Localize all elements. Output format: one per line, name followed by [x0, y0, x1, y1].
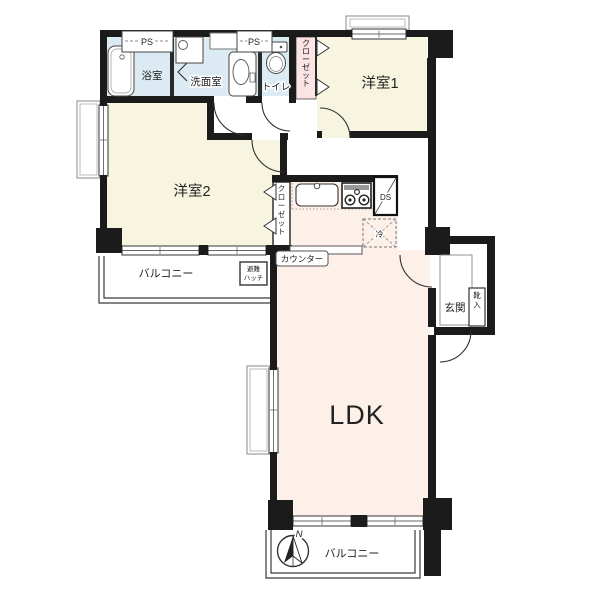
wall-corner-block [268, 500, 293, 530]
wall-segment [270, 255, 277, 370]
bedroom2-window-frame [77, 101, 100, 178]
counter-label: カウンター [281, 254, 324, 264]
ldk-left-window-frame [247, 366, 270, 454]
wall-segment [100, 30, 107, 106]
wall-segment [428, 335, 436, 498]
ldk-floor [277, 250, 430, 517]
bath-label: 浴室 [142, 69, 163, 82]
toilet-label: トイレ [262, 82, 291, 93]
toilet-door-arc [262, 103, 290, 131]
wall-segment [100, 96, 207, 103]
wall-segment [428, 138, 436, 230]
wall-segment [427, 58, 436, 138]
bedroom2-label: 洋室2 [173, 183, 210, 200]
wall-segment [246, 96, 262, 103]
wall-segment [270, 452, 277, 502]
ps-label-2: PS [248, 37, 260, 47]
stove-burner-center [348, 198, 351, 201]
wall-corner-block [425, 227, 450, 255]
toilet-tank-knob [280, 46, 283, 49]
ps-label-1: PS [141, 37, 153, 47]
wall-corner-block [96, 228, 122, 253]
wall-segment [406, 30, 430, 37]
wall-corner-block [423, 498, 452, 530]
wall-segment [434, 327, 495, 335]
stove-burner-center [362, 198, 365, 201]
escape-hatch-label-2: ハッチ [244, 274, 264, 282]
washroom-door-arc [214, 103, 246, 135]
closet-bedroom2-label: クローゼット [278, 184, 286, 236]
bedroom1-label: 洋室1 [361, 75, 398, 92]
front-door-arc [440, 331, 471, 362]
balcony-bottom-label: バルコニー [325, 547, 380, 560]
wall-segment [350, 131, 436, 138]
wall-segment [100, 175, 107, 228]
kitchen-faucet [314, 183, 320, 189]
washing-machine-icon [176, 37, 203, 63]
wall-hung-cabinet [210, 33, 237, 49]
wall-segment [207, 96, 214, 140]
bedroom1-window-frame [346, 16, 409, 30]
balcony-left: バルコニー 避難 ハッチ [99, 256, 277, 303]
wall-segment [487, 236, 495, 335]
washroom-label: 洗面室 [190, 75, 222, 88]
compass-n-label: N [296, 529, 303, 540]
entrance-area: 玄関 靴入 [440, 255, 485, 326]
wall-segment [199, 245, 208, 255]
wall-segment [424, 530, 441, 576]
compass-icon: N [278, 529, 309, 567]
shoe-cabinet-label: 靴入 [473, 290, 481, 310]
stove-burner-small [355, 190, 360, 195]
entrance-label: 玄関 [445, 301, 466, 314]
ds-label: DS [380, 193, 391, 202]
closet-bedroom1-label: クローゼット [302, 39, 310, 88]
wall-corner-block [428, 30, 453, 58]
wall-segment [280, 133, 287, 182]
bathtub-icon [108, 46, 134, 96]
balcony-bottom: バルコニー N [266, 529, 420, 578]
fridge-label: 冷 [376, 229, 384, 239]
wall-segment [428, 288, 436, 327]
entrance-step [440, 255, 472, 325]
ldk-label: LDK [329, 400, 385, 430]
wall-segment [351, 515, 367, 527]
escape-hatch-label-1: 避難 [247, 264, 261, 273]
floor-plan-drawing: バルコニー 避難 ハッチ バルコニー N [0, 0, 600, 600]
bedroom2-floor [107, 96, 287, 252]
floor-plan-page: バルコニー 避難 ハッチ バルコニー N [0, 0, 600, 600]
wall-segment [317, 131, 322, 138]
balcony-left-label: バルコニー [139, 267, 194, 280]
